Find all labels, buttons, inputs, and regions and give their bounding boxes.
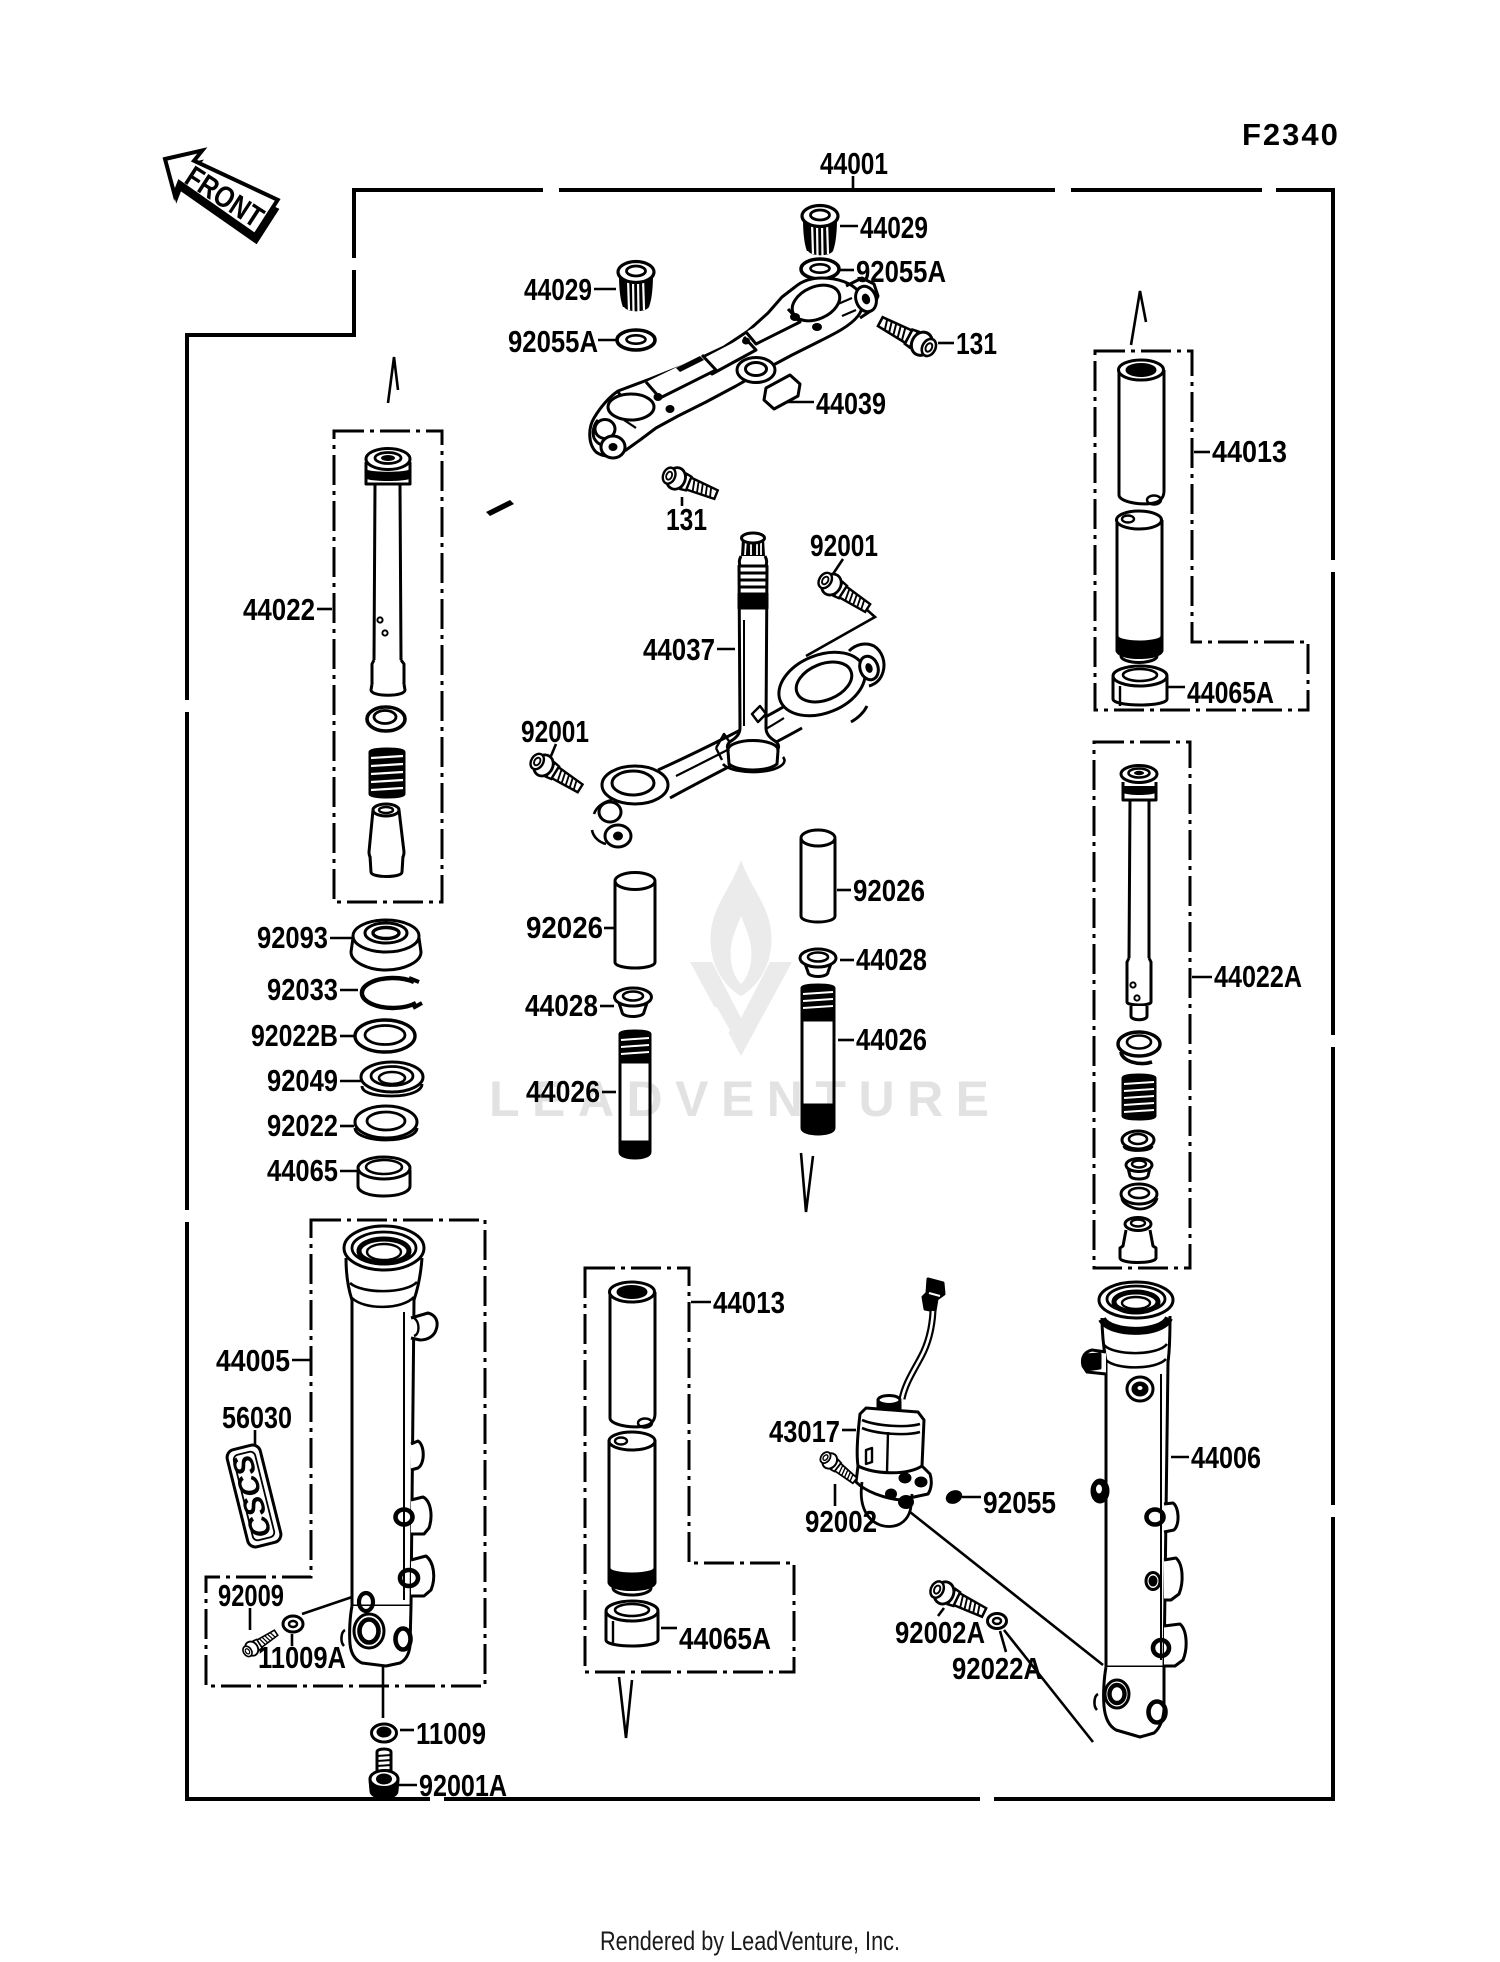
svg-text:44065A: 44065A — [679, 1621, 771, 1656]
svg-text:131: 131 — [666, 502, 707, 537]
svg-text:44022: 44022 — [243, 592, 315, 627]
svg-text:92026: 92026 — [526, 910, 603, 945]
svg-text:11009A: 11009A — [258, 1640, 346, 1675]
svg-text:44022A: 44022A — [1214, 959, 1302, 994]
svg-text:44006: 44006 — [1191, 1440, 1261, 1475]
svg-text:92033: 92033 — [267, 972, 338, 1007]
svg-text:44065: 44065 — [267, 1153, 338, 1188]
svg-text:44029: 44029 — [524, 272, 592, 307]
svg-text:92049: 92049 — [267, 1063, 338, 1098]
svg-text:44037: 44037 — [643, 632, 715, 667]
svg-text:44029: 44029 — [860, 210, 928, 245]
svg-text:131: 131 — [956, 326, 997, 361]
svg-text:Rendered by LeadVenture, Inc.: Rendered by LeadVenture, Inc. — [600, 1926, 900, 1956]
svg-text:11009: 11009 — [416, 1716, 486, 1751]
svg-text:44065A: 44065A — [1187, 675, 1274, 710]
svg-text:44013: 44013 — [1212, 434, 1287, 469]
svg-text:92001A: 92001A — [419, 1768, 507, 1803]
svg-text:92002: 92002 — [805, 1504, 877, 1539]
svg-text:44039: 44039 — [816, 386, 886, 421]
svg-text:92009: 92009 — [218, 1578, 284, 1613]
svg-text:92055A: 92055A — [856, 254, 946, 289]
svg-text:92001: 92001 — [810, 528, 878, 563]
svg-text:44028: 44028 — [856, 942, 927, 977]
svg-text:44013: 44013 — [713, 1285, 785, 1320]
svg-text:92026: 92026 — [853, 873, 925, 908]
svg-text:92093: 92093 — [257, 920, 328, 955]
svg-text:92002A: 92002A — [895, 1615, 985, 1650]
svg-text:44028: 44028 — [525, 988, 598, 1023]
svg-text:92055: 92055 — [983, 1485, 1056, 1520]
svg-text:92055A: 92055A — [508, 324, 598, 359]
svg-text:F2340: F2340 — [1242, 117, 1340, 152]
svg-text:44026: 44026 — [856, 1022, 927, 1057]
svg-text:92001: 92001 — [521, 714, 589, 749]
svg-text:44026: 44026 — [526, 1074, 600, 1109]
svg-text:56030: 56030 — [222, 1400, 292, 1435]
svg-text:44005: 44005 — [216, 1343, 290, 1378]
svg-text:92022: 92022 — [267, 1108, 338, 1143]
svg-text:44001: 44001 — [820, 146, 888, 181]
svg-text:92022A: 92022A — [952, 1651, 1042, 1686]
svg-text:43017: 43017 — [769, 1414, 840, 1449]
svg-text:92022B: 92022B — [251, 1018, 338, 1053]
